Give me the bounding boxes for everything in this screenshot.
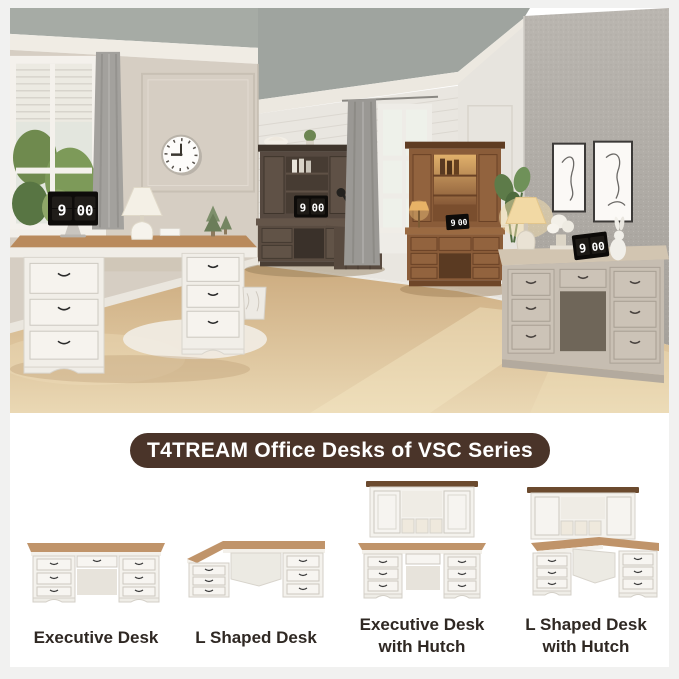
thumb-executive-desk bbox=[21, 533, 171, 605]
paper bbox=[160, 228, 180, 235]
product-label: Executive Desk with Hutch bbox=[348, 614, 496, 658]
svg-text:00: 00 bbox=[457, 218, 467, 228]
thumb-l-shaped-desk bbox=[181, 533, 331, 605]
svg-text:9: 9 bbox=[300, 202, 307, 215]
series-banner: T4TREAM Office Desks of VSC Series bbox=[130, 433, 550, 468]
flip-clock-middle: 9 00 bbox=[294, 196, 328, 218]
product-l-shaped-desk-with-hutch: L Shaped Desk with Hutch bbox=[508, 481, 664, 658]
svg-text:9: 9 bbox=[57, 202, 66, 220]
lifestyle-photo: 9 00 bbox=[10, 8, 669, 413]
svg-text:9: 9 bbox=[450, 218, 456, 228]
gray-executive-desk bbox=[498, 245, 669, 383]
product-label: L Shaped Desk bbox=[195, 627, 317, 649]
product-label: L Shaped Desk with Hutch bbox=[508, 614, 664, 658]
svg-text:00: 00 bbox=[591, 240, 606, 254]
series-banner-title: T4TREAM Office Desks of VSC Series bbox=[147, 439, 533, 463]
product-executive-desk: Executive Desk bbox=[16, 533, 176, 649]
line-art-frame-2 bbox=[594, 142, 632, 222]
product-l-shaped-desk: L Shaped Desk bbox=[176, 533, 336, 649]
thumb-l-shaped-desk-with-hutch bbox=[511, 481, 661, 605]
svg-text:00: 00 bbox=[312, 203, 325, 215]
middle-curtain bbox=[344, 99, 380, 266]
svg-text:00: 00 bbox=[77, 204, 94, 220]
trash-bin bbox=[243, 287, 266, 319]
wall-clock bbox=[162, 136, 202, 176]
thumb-executive-desk-with-hutch bbox=[352, 477, 492, 605]
flip-clock-walnut: 9 00 bbox=[446, 214, 470, 231]
product-image[interactable]: 9 00 bbox=[0, 0, 679, 679]
product-label: Executive Desk bbox=[34, 627, 159, 649]
line-art-frame-1 bbox=[553, 144, 585, 212]
product-executive-desk-with-hutch: Executive Desk with Hutch bbox=[348, 477, 496, 658]
flip-clock-gray-desk: 9 00 bbox=[572, 231, 610, 260]
